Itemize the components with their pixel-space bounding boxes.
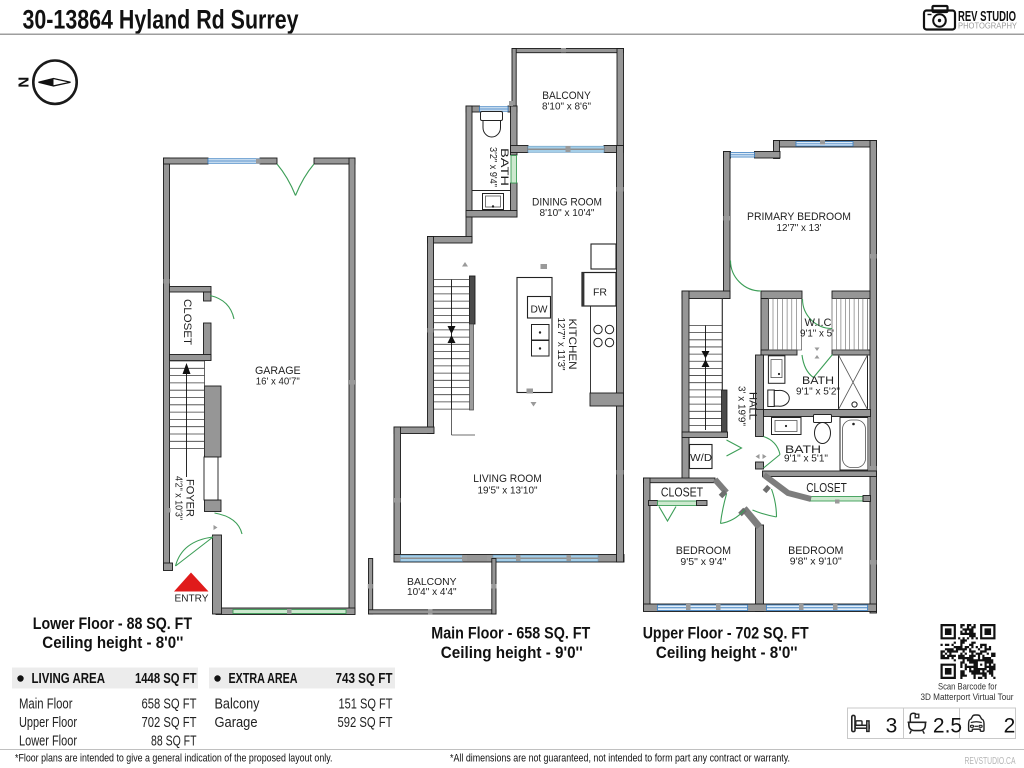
svg-text:9'1" x 5'1": 9'1" x 5'1" xyxy=(784,453,828,465)
svg-text:*All dimensions are not guaran: *All dimensions are not guaranteed, not … xyxy=(450,753,790,765)
svg-text:Upper Floor - 702 SQ. FT: Upper Floor - 702 SQ. FT xyxy=(643,624,810,643)
svg-text:LIVING ROOM: LIVING ROOM xyxy=(473,473,542,485)
svg-text:658 SQ FT: 658 SQ FT xyxy=(142,697,197,713)
svg-text:CLOSET: CLOSET xyxy=(661,485,703,500)
svg-text:8'10" x 10'4": 8'10" x 10'4" xyxy=(540,207,595,219)
svg-text:PHOTOGRAPHY: PHOTOGRAPHY xyxy=(958,21,1017,31)
svg-text:9'8" x 9'10": 9'8" x 9'10" xyxy=(790,556,842,568)
svg-text:FR: FR xyxy=(593,287,607,299)
svg-text:DW: DW xyxy=(531,304,548,316)
svg-text:Lower Floor - 88 SQ. FT: Lower Floor - 88 SQ. FT xyxy=(33,614,193,633)
svg-text:9'1" x 5': 9'1" x 5' xyxy=(800,328,834,340)
svg-text:KITCHEN: KITCHEN xyxy=(566,319,578,370)
svg-text:EXTRA AREA: EXTRA AREA xyxy=(229,671,298,687)
svg-text:Ceiling height - 8'0'': Ceiling height - 8'0'' xyxy=(42,633,183,652)
svg-text:10'4" x 4'4": 10'4" x 4'4" xyxy=(407,587,457,598)
svg-text:Main Floor: Main Floor xyxy=(19,697,73,713)
svg-text:HALL: HALL xyxy=(747,392,759,420)
svg-text:8'10" x 8'6": 8'10" x 8'6" xyxy=(542,101,591,113)
svg-text:9'5" x 9'4": 9'5" x 9'4" xyxy=(680,556,726,568)
svg-text:Ceiling height - 9'0'': Ceiling height - 9'0'' xyxy=(441,643,583,662)
svg-text:Lower Floor: Lower Floor xyxy=(19,734,77,750)
svg-text:1448 SQ FT: 1448 SQ FT xyxy=(135,671,197,687)
svg-text:3'2" x 9'4": 3'2" x 9'4" xyxy=(487,147,498,187)
svg-text:151 SQ FT: 151 SQ FT xyxy=(339,697,393,713)
svg-text:Scan Barcode for: Scan Barcode for xyxy=(938,682,997,692)
svg-text:Garage: Garage xyxy=(215,715,258,731)
svg-text:3D Matterport Virtual Tour: 3D Matterport Virtual Tour xyxy=(921,692,1014,702)
svg-text:3' x 19'9": 3' x 19'9" xyxy=(736,386,747,426)
svg-text:4'2" x 10'3": 4'2" x 10'3" xyxy=(173,476,184,520)
svg-text:Balcony: Balcony xyxy=(215,697,261,713)
svg-text:16' x 40'7": 16' x 40'7" xyxy=(256,376,300,388)
svg-text:592 SQ FT: 592 SQ FT xyxy=(338,715,393,731)
svg-text:Ceiling height - 8'0'': Ceiling height - 8'0'' xyxy=(656,643,798,662)
svg-text:2: 2 xyxy=(1004,715,1016,738)
svg-text:N: N xyxy=(15,77,32,88)
svg-text:CLOSET: CLOSET xyxy=(181,299,193,345)
svg-text:CLOSET: CLOSET xyxy=(806,480,847,495)
svg-text:743 SQ FT: 743 SQ FT xyxy=(336,671,393,687)
svg-text:LIVING AREA: LIVING AREA xyxy=(32,671,106,687)
svg-text:12'7" x 11'3": 12'7" x 11'3" xyxy=(555,318,566,371)
svg-text:19'5" x 13'10": 19'5" x 13'10" xyxy=(478,485,538,497)
svg-text:Main Floor - 658 SQ. FT: Main Floor - 658 SQ. FT xyxy=(431,624,591,643)
svg-text:Upper Floor: Upper Floor xyxy=(19,715,77,731)
svg-text:REVSTUDIO.CA: REVSTUDIO.CA xyxy=(965,756,1016,767)
svg-text:88 SQ FT: 88 SQ FT xyxy=(151,734,197,750)
svg-text:*Floor plans are intended to g: *Floor plans are intended to give a gene… xyxy=(15,753,333,765)
svg-text:30-13864 Hyland Rd Surrey: 30-13864 Hyland Rd Surrey xyxy=(23,5,299,35)
svg-text:ENTRY: ENTRY xyxy=(175,593,209,605)
svg-text:702 SQ FT: 702 SQ FT xyxy=(142,715,197,731)
svg-text:FOYER: FOYER xyxy=(184,479,196,517)
svg-text:12'7" x 13': 12'7" x 13' xyxy=(777,222,822,234)
svg-text:3: 3 xyxy=(886,715,898,738)
svg-text:W/D: W/D xyxy=(690,453,712,464)
svg-text:2.5: 2.5 xyxy=(933,715,962,738)
svg-text:BATH: BATH xyxy=(498,148,510,186)
svg-text:9'1" x 5'2": 9'1" x 5'2" xyxy=(796,386,840,398)
